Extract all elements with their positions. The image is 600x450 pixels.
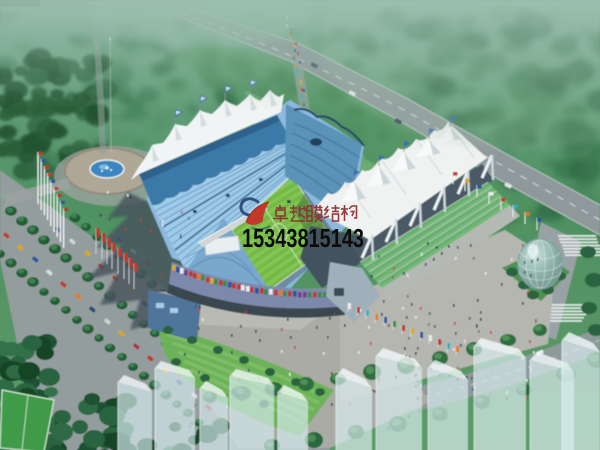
svg-text:15343815143: 15343815143	[242, 223, 364, 253]
